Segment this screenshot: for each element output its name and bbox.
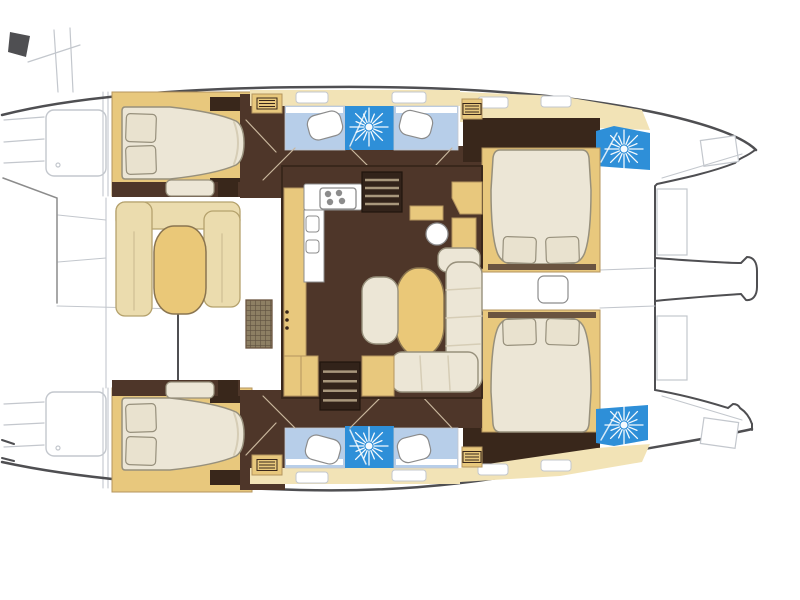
bed-pillow <box>503 236 537 263</box>
vent-locker <box>462 447 482 467</box>
cockpit-wall-cabinet <box>218 182 238 197</box>
stern-step-line <box>4 117 44 120</box>
nav-shelf <box>410 206 443 220</box>
bed-pillow <box>126 145 157 174</box>
bed-pillow <box>546 318 580 345</box>
stern-step <box>58 215 106 220</box>
bedside-cabinet <box>210 470 240 485</box>
galley-knob <box>285 326 289 330</box>
stove-burner <box>339 198 345 204</box>
bed-headboard <box>488 312 596 318</box>
deck-hatch <box>296 472 328 483</box>
sun-center <box>621 422 628 429</box>
davit-cleat <box>8 32 30 57</box>
cockpit-wall-cabinet <box>218 380 238 396</box>
stern-step <box>58 258 106 262</box>
stern-step-line <box>4 445 44 447</box>
stern-step-line <box>4 402 44 404</box>
bed-pillow <box>126 113 157 142</box>
stern-step-line <box>4 161 44 163</box>
bed-pillow <box>546 236 580 263</box>
sun-center <box>366 443 373 450</box>
stove-burner <box>325 191 331 197</box>
galley-sink <box>306 216 319 232</box>
davit-line <box>28 45 80 62</box>
bow-deck-hatch <box>700 418 738 449</box>
vent-locker <box>252 455 282 475</box>
deck-hatch <box>541 96 571 107</box>
stbd-hull-corridor <box>285 396 482 428</box>
nav-stool <box>426 223 448 245</box>
transom-cleat <box>2 440 14 444</box>
stove-burner <box>336 190 342 196</box>
saloon-armchair <box>362 277 398 344</box>
vent-locker <box>252 94 282 113</box>
shower-drain-sunburst <box>605 130 643 168</box>
bow-inner-line <box>662 154 742 178</box>
sun-center <box>621 146 628 153</box>
stern-step-line <box>4 423 44 425</box>
stern-quarter-edge <box>3 178 57 303</box>
cockpit-bench <box>166 382 214 398</box>
galley-outboard-cabinet <box>284 188 306 356</box>
bed-pillow <box>126 436 157 465</box>
foredeck-locker <box>657 189 687 255</box>
cockpit-table <box>154 226 206 314</box>
between-beds-seat <box>538 276 568 303</box>
bedside-cabinet <box>210 97 240 111</box>
galley-knob <box>285 318 289 322</box>
saloon-cabinet <box>362 356 394 396</box>
davit-line <box>70 28 73 92</box>
companionway-stairs-port <box>362 172 402 212</box>
shower-drain-sunburst <box>350 427 388 465</box>
bow-center-pod <box>655 257 757 301</box>
deck-hatch <box>392 92 426 103</box>
passage-edge <box>600 268 655 270</box>
catamaran-floorplan <box>0 0 800 600</box>
stairs-frame <box>320 362 360 410</box>
galley-sink <box>306 240 319 253</box>
stove-burner <box>327 199 333 205</box>
stairs-frame <box>362 172 402 212</box>
stern-step-line <box>4 139 44 142</box>
floorplan-canvas <box>0 0 800 600</box>
bed-headboard <box>488 264 596 270</box>
starboard-transom-platform <box>46 392 106 456</box>
foredeck-locker <box>657 316 687 380</box>
deck-hatch <box>296 92 328 103</box>
deck-hatch <box>392 470 426 481</box>
sun-center <box>366 124 373 131</box>
saloon-sofa <box>392 352 478 392</box>
cockpit-bench <box>166 180 214 196</box>
shower-drain-sunburst <box>605 406 643 444</box>
bow-deck-hatch <box>700 136 738 167</box>
bed-pillow <box>126 403 157 432</box>
transom-cleat <box>2 458 14 461</box>
vent-locker <box>462 99 482 119</box>
companionway-stairs-stbd <box>320 362 360 410</box>
bed-pillow <box>503 318 537 345</box>
saloon-table <box>396 268 444 356</box>
shower-drain-sunburst <box>350 108 388 146</box>
davit-line <box>54 30 58 92</box>
deck-hatch <box>541 460 571 471</box>
passage-edge <box>600 306 655 308</box>
port-transom-platform <box>46 110 106 176</box>
galley-knob <box>285 310 289 314</box>
deck-grate <box>246 300 272 348</box>
